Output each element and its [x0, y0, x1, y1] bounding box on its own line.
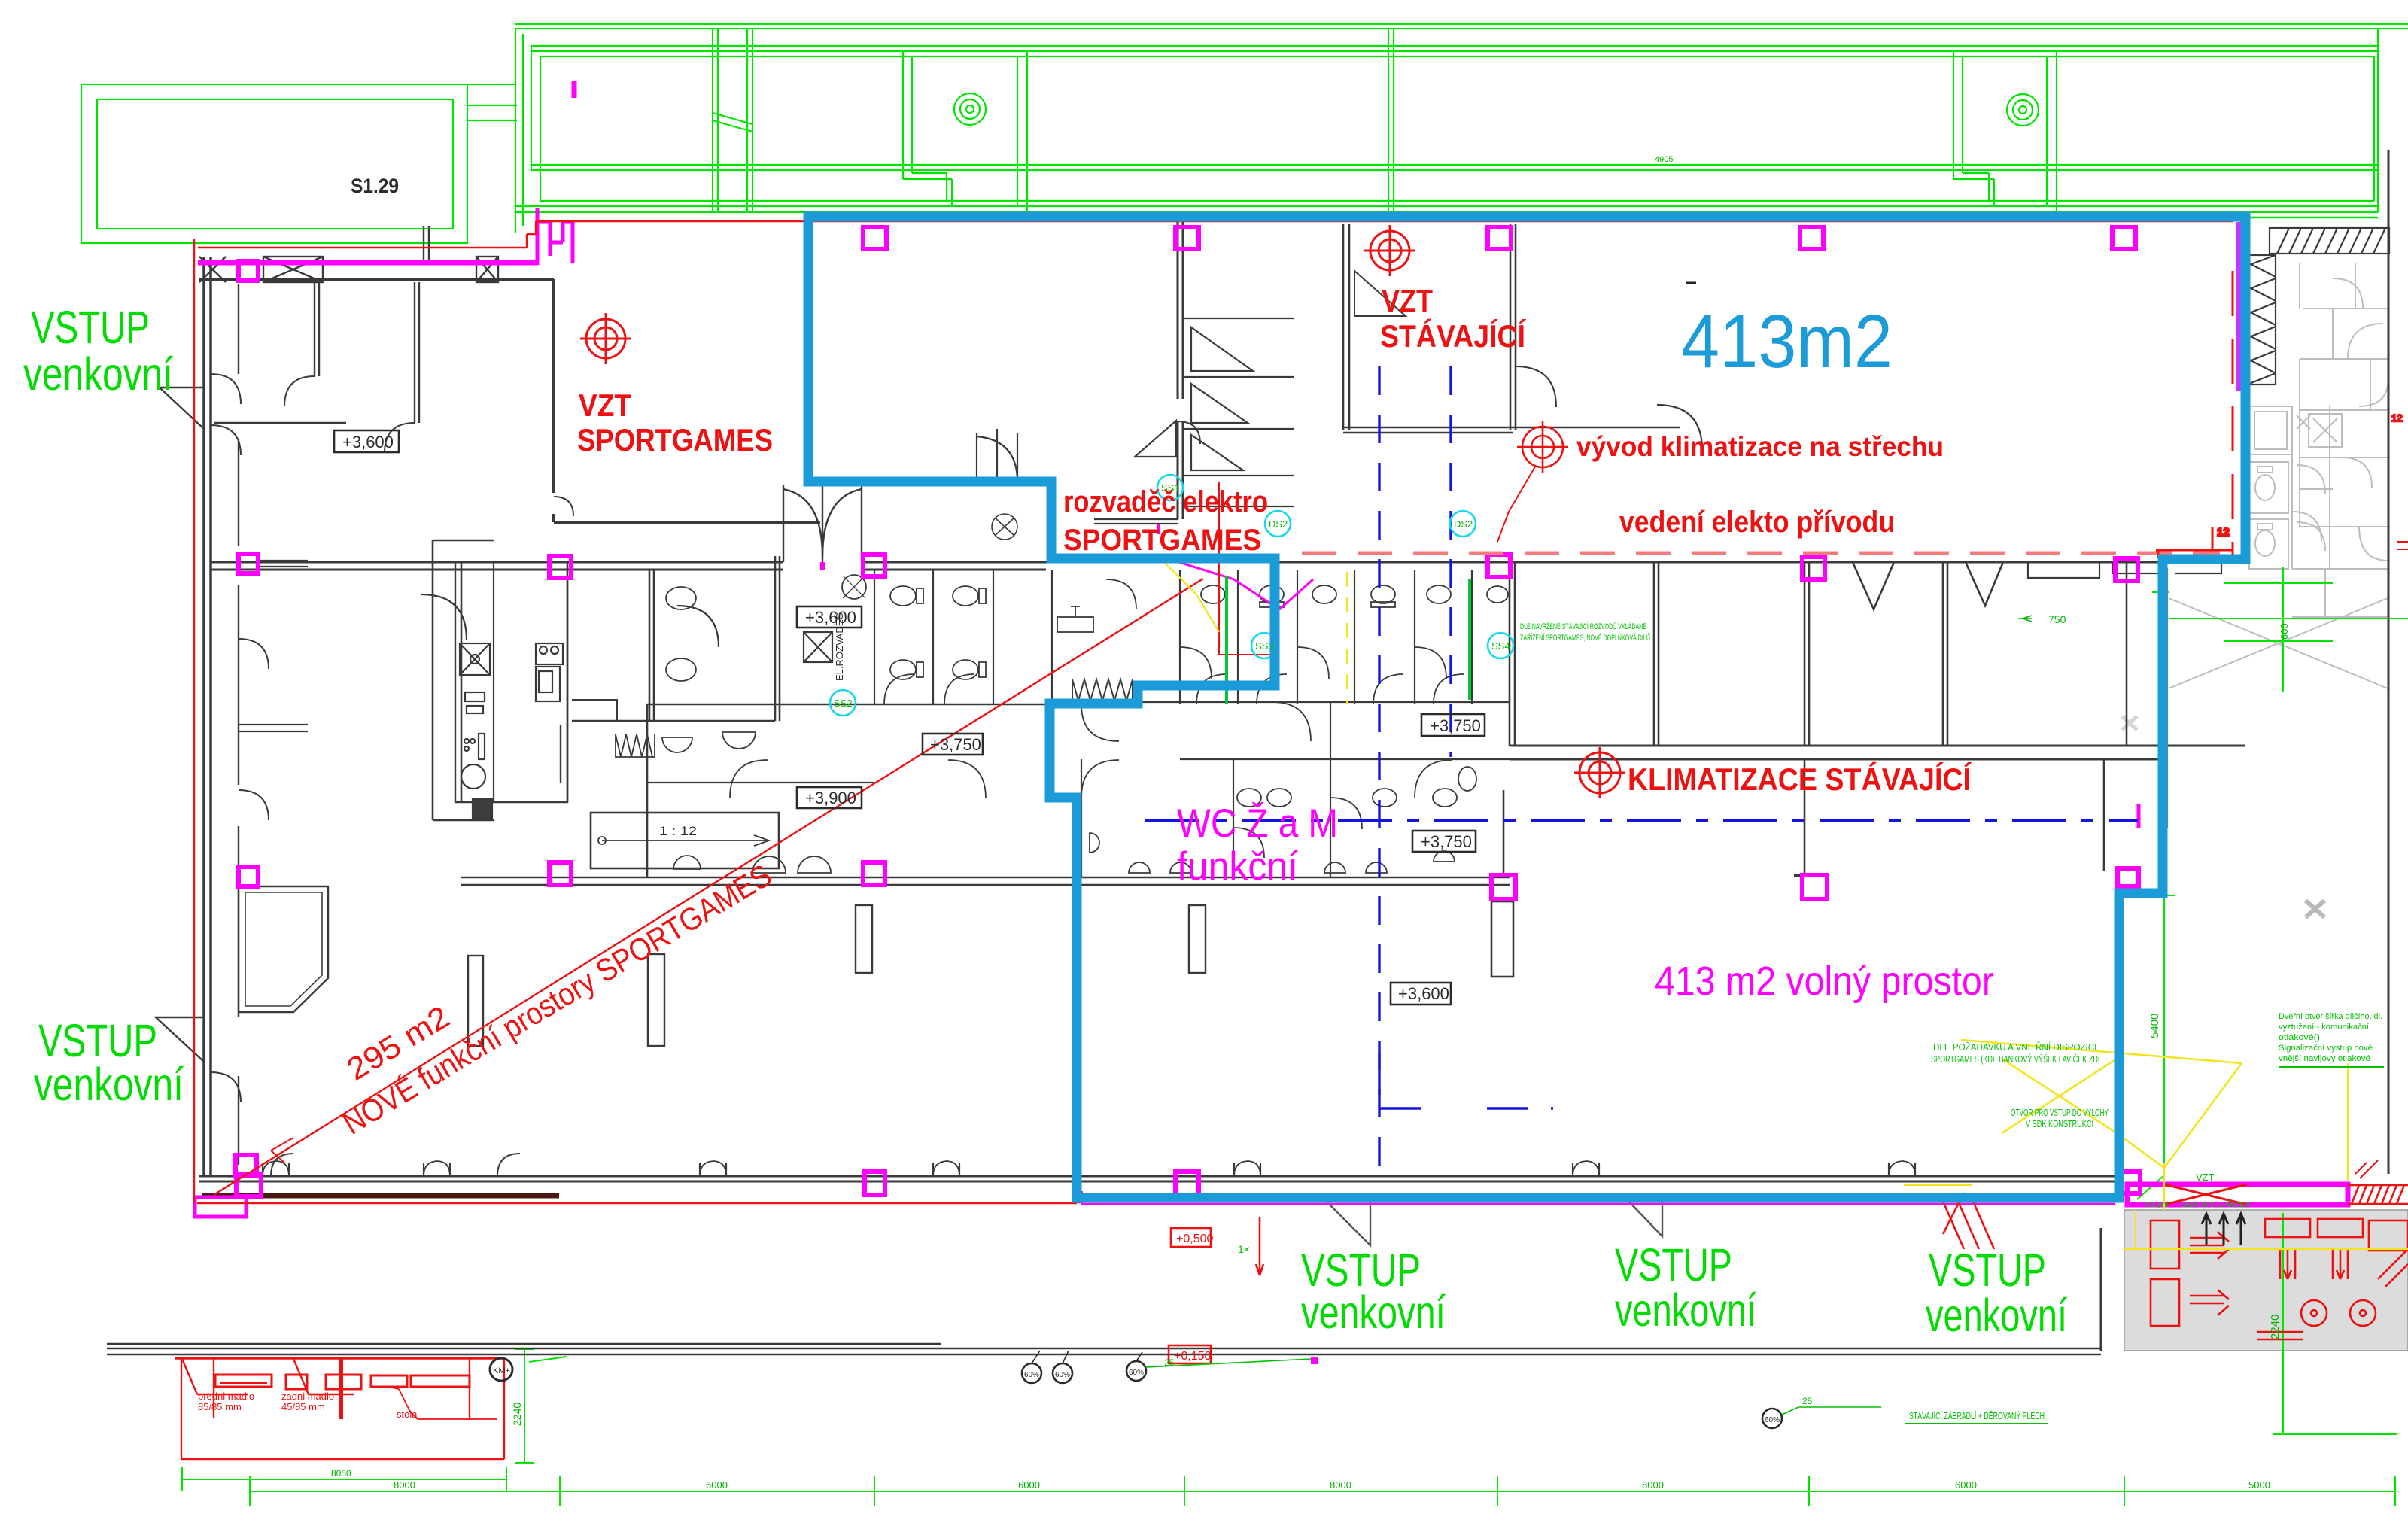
svg-text:60%: 60% — [1024, 1371, 1039, 1379]
svg-text:STÁVAJÍCÍ ZÁBRADLÍ + DĚROVANÝ: STÁVAJÍCÍ ZÁBRADLÍ + DĚROVANÝ PLECH — [1909, 1410, 2045, 1421]
svg-text:SPORTGAMES: SPORTGAMES — [577, 422, 773, 457]
svg-text:vnější navijovy otlakové: vnější navijovy otlakové — [2279, 1054, 2370, 1063]
svg-text:DLE POŽADAVKU A VNITŘNÍ DISPOZ: DLE POŽADAVKU A VNITŘNÍ DISPOZICE — [1933, 1041, 2100, 1053]
svg-text:venkovní: venkovní — [1301, 1287, 1446, 1338]
svg-text:413 m2 volný prostor: 413 m2 volný prostor — [1655, 959, 1994, 1004]
svg-text:750: 750 — [2048, 613, 2066, 625]
svg-text:1 : 12: 1 : 12 — [659, 824, 697, 838]
svg-text:NOVÉ funkční prostory SPORT: NOVÉ funkční prostory SPORTGAMES — [336, 857, 777, 1141]
svg-text:KLIMATIZACE STÁVAJÍCÍ: KLIMATIZACE STÁVAJÍCÍ — [1628, 761, 1972, 797]
svg-text:+0,150: +0,150 — [1174, 1350, 1211, 1363]
svg-text:venkovní: venkovní — [1615, 1284, 1756, 1336]
svg-text:6000: 6000 — [1018, 1479, 1040, 1491]
svg-text:VSTUP: VSTUP — [31, 302, 150, 353]
svg-text:VSTUP: VSTUP — [1929, 1245, 2046, 1296]
svg-text:venkovní: venkovní — [1926, 1290, 2067, 1341]
svg-text:WC Ž a M: WC Ž a M — [1177, 801, 1338, 846]
svg-text:vývod klimatizace na střechu: vývod klimatizace na střechu — [1576, 431, 1944, 462]
svg-text:SPORTGAMES (KDE BANKOVÝ VÝŠEK: SPORTGAMES (KDE BANKOVÝ VÝŠEK LAVIČEK ZD… — [1931, 1053, 2102, 1065]
svg-text:60%: 60% — [1765, 1416, 1780, 1424]
svg-text:8050: 8050 — [331, 1468, 351, 1479]
svg-text:+3,600: +3,600 — [805, 608, 856, 627]
svg-text:5400: 5400 — [2148, 1014, 2161, 1038]
svg-text:6000: 6000 — [1955, 1479, 1977, 1491]
svg-text:12: 12 — [2217, 526, 2230, 539]
svg-text:otlakové(): otlakové() — [2279, 1033, 2320, 1042]
svg-text:8000: 8000 — [1642, 1479, 1664, 1491]
svg-text:2240: 2240 — [511, 1403, 523, 1426]
svg-text:VSTUP: VSTUP — [1615, 1239, 1732, 1290]
svg-text:EL.ROZVADĚČ: EL.ROZVADĚČ — [834, 612, 845, 681]
svg-text:SERVISNÍ ZAŘÍZENÍ: SERVISNÍ ZAŘÍZENÍ — [2181, 1199, 2252, 1209]
svg-text:85/85 mm: 85/85 mm — [198, 1401, 242, 1412]
svg-text:45/85 mm: 45/85 mm — [281, 1401, 325, 1412]
svg-text:6000: 6000 — [706, 1479, 728, 1491]
svg-text:DLE NAVRŽENÉ STÁVAJÍCÍ ROZVODŮ: DLE NAVRŽENÉ STÁVAJÍCÍ ROZVODŮ VKLÁDANÉ — [1520, 622, 1646, 631]
svg-text:KM+: KM+ — [493, 1366, 510, 1375]
svg-text:ZAŘÍZENÍ SPORTGAMES, NOVÉ DOPL: ZAŘÍZENÍ SPORTGAMES, NOVÉ DOPLŇKOVÁ DILŮ — [1520, 633, 1650, 643]
svg-text:+3,600: +3,600 — [342, 433, 394, 451]
svg-text:DS2: DS2 — [1269, 518, 1288, 530]
svg-text:60%: 60% — [1055, 1371, 1070, 1379]
svg-text:STÁVAJÍCÍ: STÁVAJÍCÍ — [1380, 318, 1526, 354]
svg-text:2240: 2240 — [2269, 1315, 2282, 1339]
svg-text:+3,750: +3,750 — [1430, 716, 1481, 735]
svg-text:venkovní: venkovní — [34, 1059, 184, 1110]
svg-text:VZT: VZT — [2196, 1172, 2215, 1183]
svg-text:Signalizační výstup nové: Signalizační výstup nové — [2279, 1044, 2373, 1053]
svg-text:+3,900: +3,900 — [805, 789, 856, 807]
svg-text:SS2: SS2 — [834, 698, 853, 709]
svg-text:SS4: SS4 — [1491, 640, 1510, 652]
svg-text:vstupní: vstupní — [2144, 1201, 2168, 1209]
svg-text:+3,600: +3,600 — [1398, 984, 1449, 1003]
svg-text:25: 25 — [1164, 1357, 1175, 1368]
svg-text:DS2: DS2 — [1454, 518, 1473, 530]
svg-text:+3,750: +3,750 — [930, 735, 981, 754]
svg-text:S1.29: S1.29 — [351, 175, 399, 197]
svg-text:predni madlo: predni madlo — [198, 1391, 254, 1402]
svg-text:8000: 8000 — [1330, 1479, 1351, 1491]
svg-text:VZT: VZT — [1382, 283, 1433, 318]
svg-text:12: 12 — [2391, 412, 2402, 424]
svg-text:5000: 5000 — [2248, 1479, 2270, 1491]
svg-text:SS1: SS1 — [1161, 482, 1180, 494]
svg-text:413m2: 413m2 — [1681, 299, 1893, 384]
svg-text:1×: 1× — [1238, 1243, 1250, 1255]
svg-text:+0,500: +0,500 — [1176, 1233, 1213, 1245]
svg-text:8000: 8000 — [394, 1479, 415, 1491]
svg-text:zadni madlo: zadni madlo — [281, 1391, 334, 1402]
svg-text:25: 25 — [1802, 1396, 1813, 1406]
svg-text:VZT: VZT — [579, 388, 631, 423]
svg-text:Dveřní otvor šířka dílčího, dl: Dveřní otvor šířka dílčího, dl. — [2279, 1012, 2382, 1021]
svg-text:SPORTGAMES: SPORTGAMES — [1063, 524, 1261, 557]
svg-text:vyztužení - komunikační: vyztužení - komunikační — [2279, 1023, 2369, 1032]
svg-text:4905: 4905 — [1655, 155, 1673, 164]
svg-text:SS3: SS3 — [1255, 640, 1274, 652]
svg-text:V SDK KONSTRUKCI: V SDK KONSTRUKCI — [2026, 1118, 2093, 1129]
svg-text:venkovní: venkovní — [23, 348, 173, 400]
svg-text:stola: stola — [397, 1409, 418, 1420]
svg-text:+3,750: +3,750 — [1421, 832, 1472, 851]
svg-text:600: 600 — [2279, 623, 2290, 640]
svg-text:60%: 60% — [1129, 1369, 1144, 1377]
svg-text:OTVOR PRO VSTUP DO VÝLOHY: OTVOR PRO VSTUP DO VÝLOHY — [2011, 1107, 2109, 1118]
svg-text:funkční: funkční — [1177, 844, 1298, 889]
svg-text:vedení elekto přívodu: vedení elekto přívodu — [1619, 506, 1895, 539]
